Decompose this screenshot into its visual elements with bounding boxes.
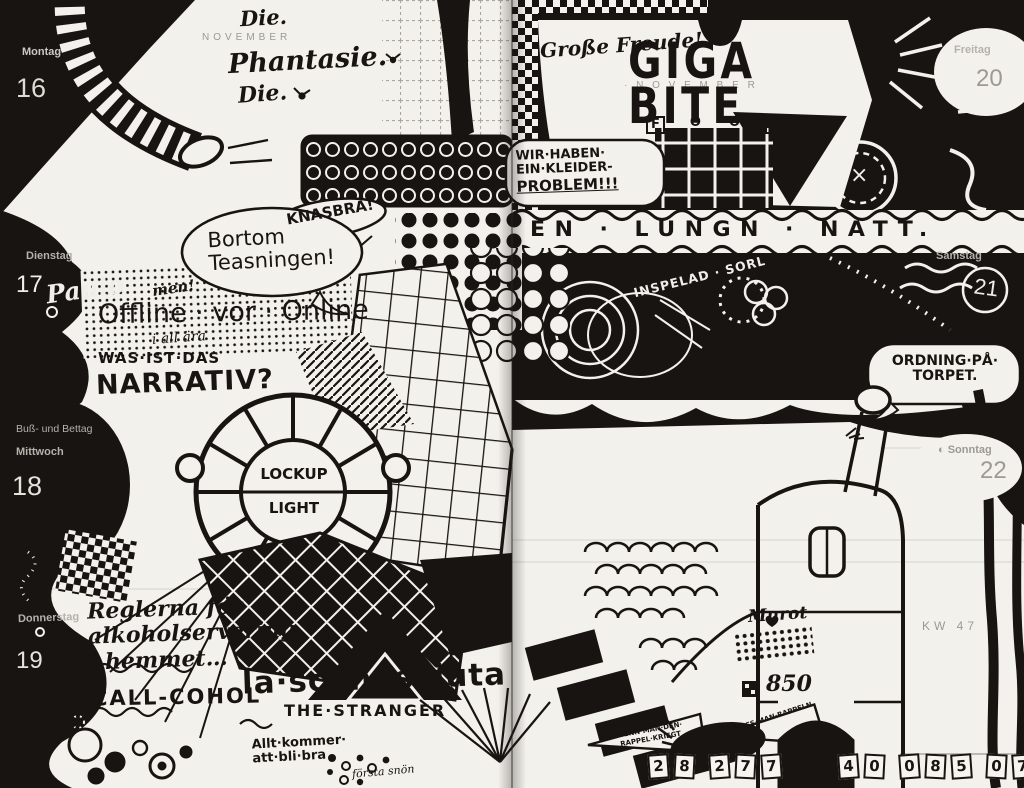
- light-label: LIGHT: [250, 500, 338, 517]
- av-label: AV: [795, 758, 825, 779]
- digit-box: 2: [647, 753, 670, 779]
- day-label-dienstag: Dienstag: [26, 250, 72, 262]
- digit-box: 2: [708, 753, 731, 779]
- ordning-note: ORDNING·PÅ· TORPET.: [878, 354, 1012, 385]
- food-letters: F O O D: [646, 116, 786, 134]
- date-20: 20: [976, 66, 1003, 92]
- lockup-label: LOCKUP: [250, 466, 338, 483]
- november-label-left: NOVEMBER: [202, 32, 291, 43]
- digit-box: 7: [1011, 753, 1024, 779]
- digit-box: 0: [985, 753, 1007, 779]
- boxed-digits-row: 2 8 2 7 7 AV 4 0 0 8 5 0 7 1: [648, 754, 1024, 779]
- date-21: 21: [972, 274, 1000, 301]
- digit-box: 8: [924, 753, 946, 779]
- holiday-label: Buß- und Bettag: [16, 424, 92, 436]
- day-label-montag: Montag: [22, 46, 61, 58]
- lungn-natt-note: EN · LUNGN · NATT.: [530, 218, 937, 241]
- date-19: 19: [16, 648, 43, 674]
- reglerna-note: Reglerna för alkoholservering i hemmet…: [87, 592, 297, 675]
- murot-note: Murot: [747, 604, 807, 627]
- digit-box: 8: [673, 753, 695, 779]
- sketchbook-spread: Die. NOVEMBER Phantasie. Die. Montag 16 …: [0, 0, 1024, 788]
- stranger-subtitle: THE·STRANGER: [284, 702, 446, 720]
- week-label: KW 47: [922, 620, 978, 633]
- pixel-checker-patch: [55, 529, 137, 603]
- x-mark-doodle: ×: [850, 164, 868, 188]
- allt-note: Allt·kommer· att·bli·bra: [251, 734, 347, 768]
- num-850-note: 850: [766, 672, 812, 696]
- day-label-sonntag: ◐ Sonntag: [938, 444, 992, 456]
- die-note-1: Die.: [239, 5, 287, 31]
- callcohol-note: CALL-COHOL: [92, 685, 262, 711]
- date-22: 22: [980, 458, 1007, 484]
- digit-box: 7: [734, 753, 756, 779]
- black-grid-texture: [655, 128, 773, 208]
- rope-coil-doodle: [302, 136, 512, 206]
- checker-strip: [538, 0, 708, 13]
- bortom-note: Bortom Teasningen!: [207, 223, 336, 276]
- digit-box: 5: [950, 753, 973, 779]
- giga-bite-lettering: GIGA BITE F O O D: [628, 34, 783, 134]
- date-16: 16: [16, 74, 46, 104]
- die-icon: [742, 681, 758, 697]
- moon-phase-icon: ◐: [938, 444, 945, 456]
- digit-box: 0: [898, 753, 921, 779]
- kleider-problem-note: WIR·HABEN· EIN·KLEIDER- PROBLEM!!!: [515, 146, 618, 195]
- day-label-donnerstag: Donnerstag: [18, 611, 80, 625]
- day-label-freitag: Freitag: [954, 44, 991, 56]
- digit-box: 4: [837, 753, 860, 779]
- die-note-2: Die.: [237, 80, 288, 108]
- day-label-mittwoch: Mittwoch: [16, 446, 64, 458]
- digit-box: 7: [760, 753, 783, 779]
- date-17: 17: [16, 272, 43, 298]
- offline-online-note: Offline · vor · Online: [98, 296, 369, 330]
- narrativ-note-line1: WAS·IST·DAS: [98, 350, 220, 367]
- digit-box: 0: [863, 753, 885, 779]
- day-label-samstag: Samstag: [936, 250, 982, 262]
- date-18: 18: [12, 472, 42, 502]
- narrativ-note-line2: NARRATIV?: [96, 365, 275, 401]
